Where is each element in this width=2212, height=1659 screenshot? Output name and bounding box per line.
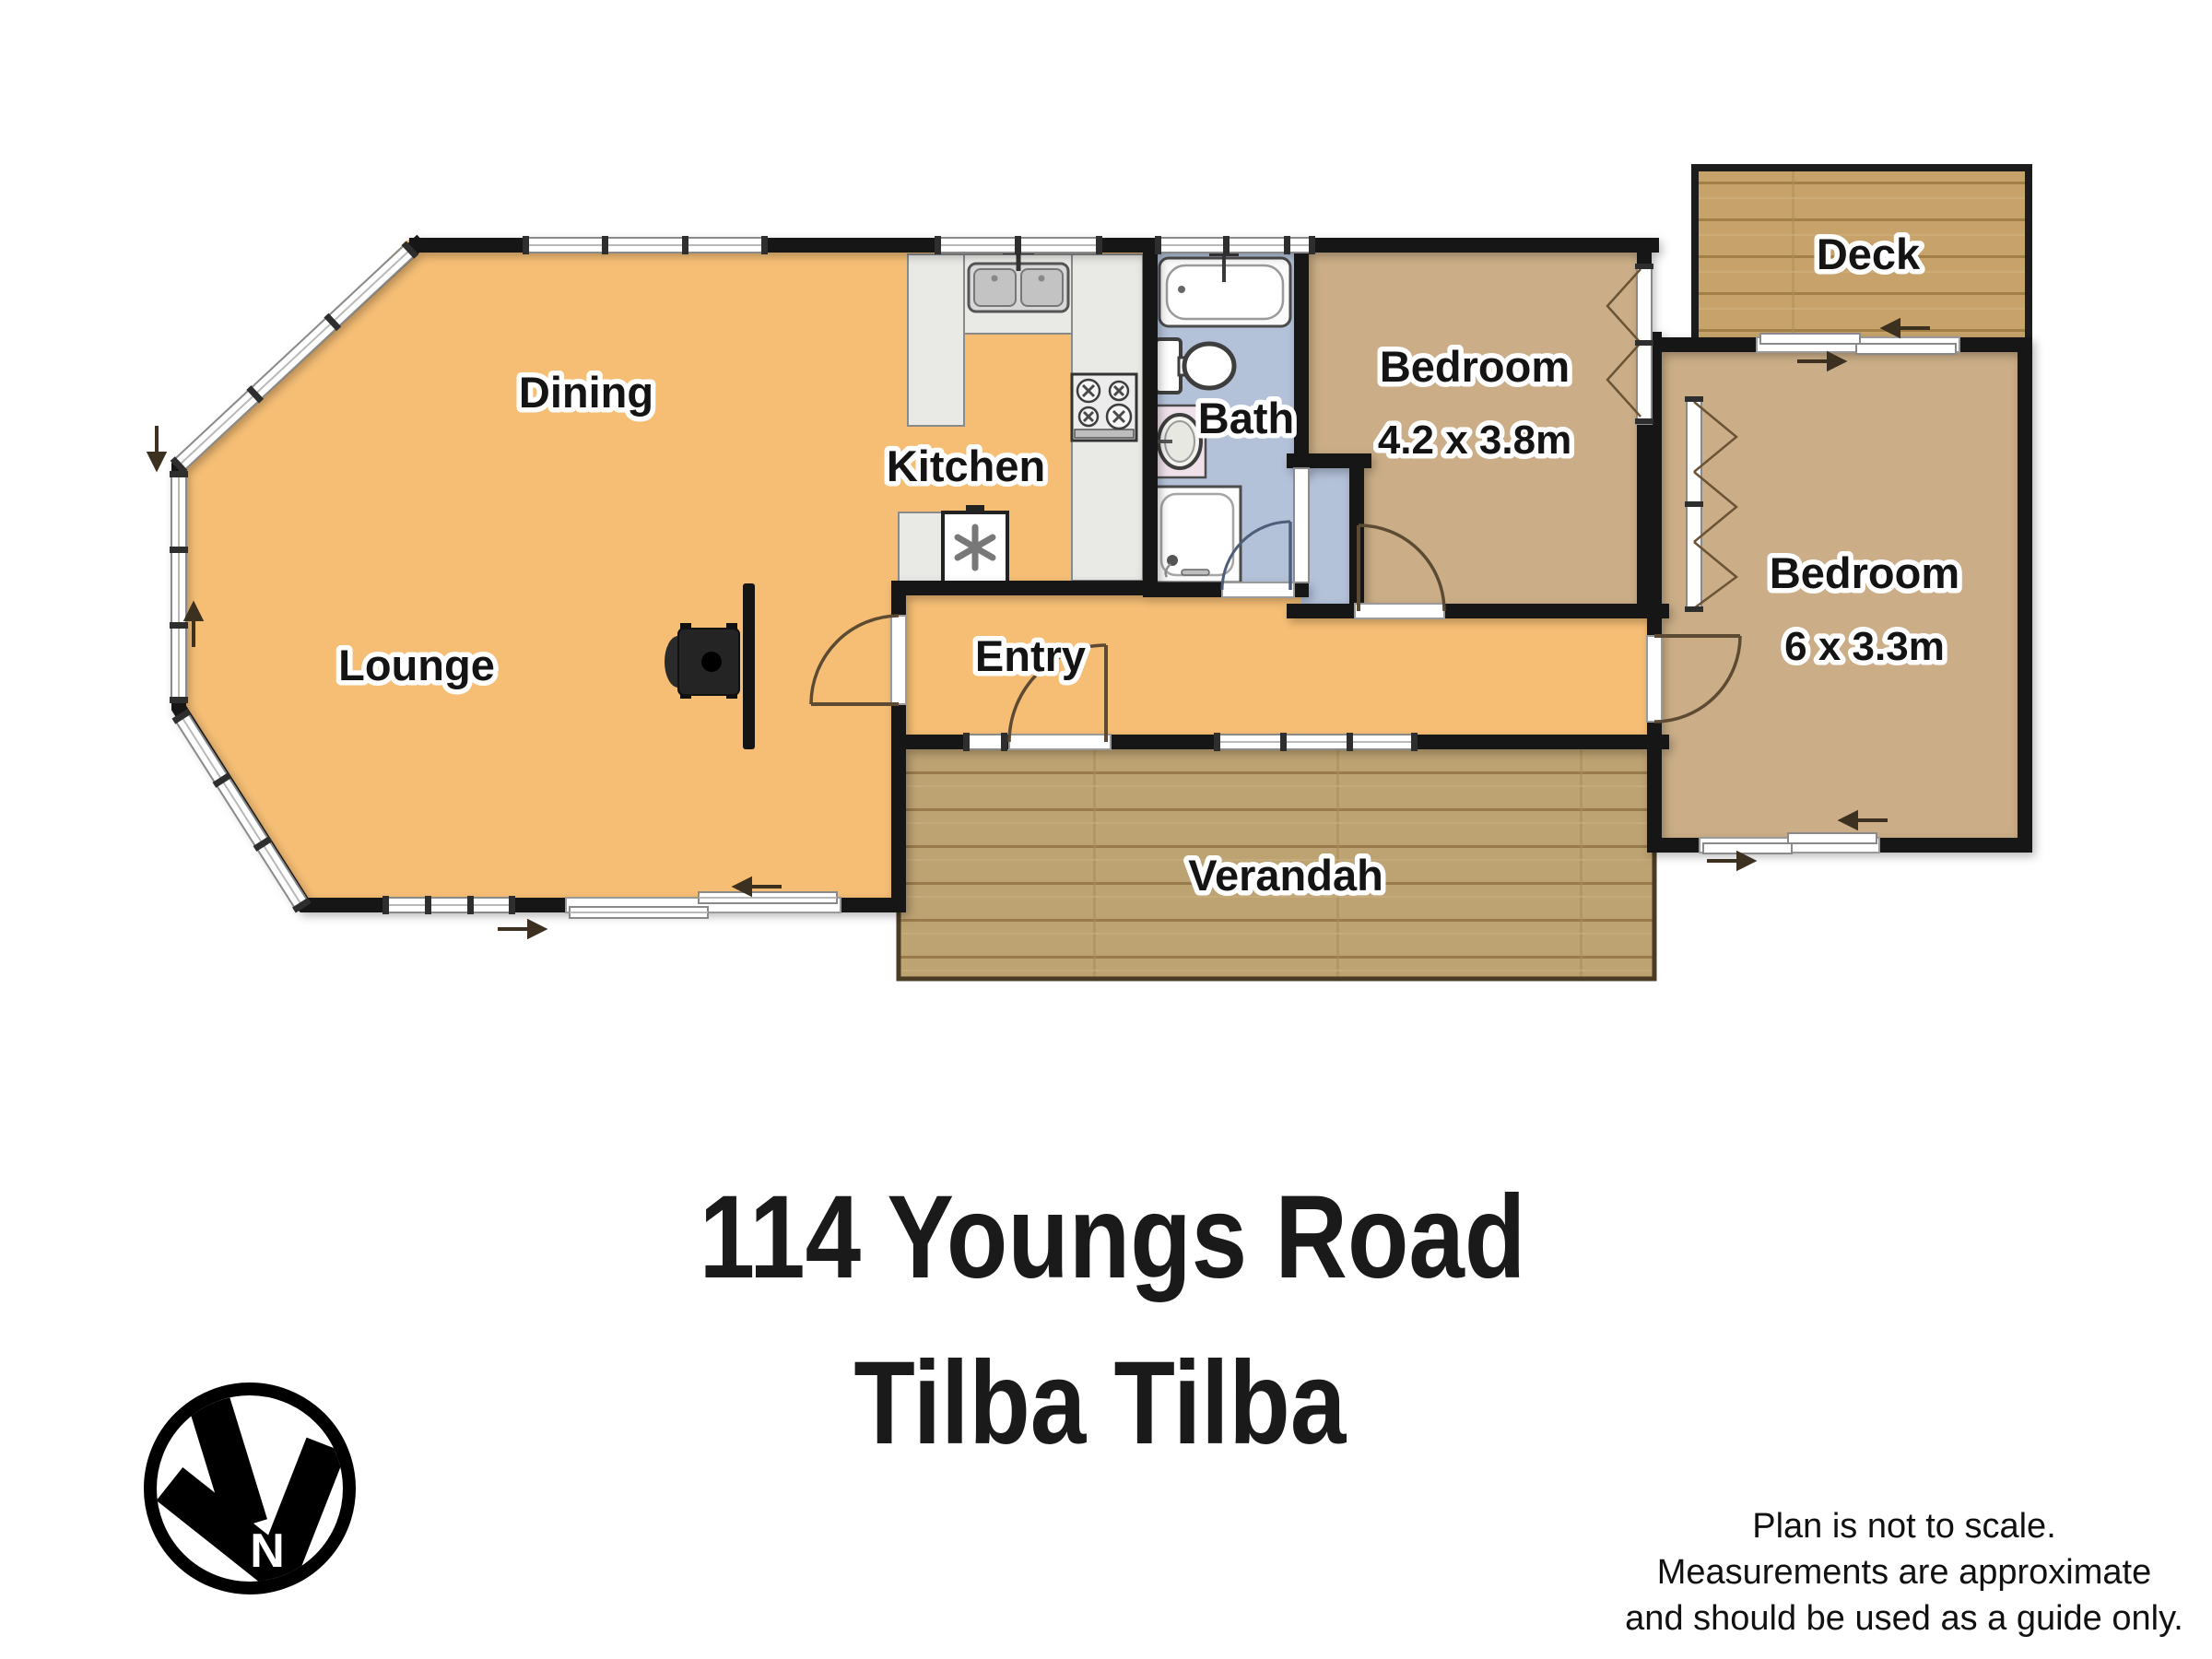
title-address: 114 Youngs Road	[700, 1171, 1526, 1303]
disclaimer-line-2: Measurements are approximate	[1657, 1553, 2151, 1592]
slide-arrow-bay-down	[149, 426, 164, 468]
floor-plan: Dining Lounge Kitchen Bath Entry Veranda…	[0, 0, 2212, 1659]
label-bedroom1: Bedroom	[1380, 342, 1570, 391]
label-entry: Entry	[975, 631, 1086, 680]
disclaimer-line-3: and should be used as a guide only.	[1625, 1599, 2183, 1638]
label-deck: Deck	[1817, 229, 1921, 278]
slide-arrow-lounge-right	[498, 922, 544, 936]
window-dining-top	[523, 236, 768, 254]
label-lounge: Lounge	[338, 641, 495, 689]
nook-panel	[1294, 468, 1309, 582]
label-kitchen: Kitchen	[887, 441, 1045, 490]
disclaimer-note: Plan is not to scale. Measurements are a…	[1625, 1507, 2183, 1638]
feature-wall	[743, 583, 755, 749]
label-bedroom1-dimensions: 4.2 x 3.8m	[1378, 418, 1571, 463]
window-entry-right	[1214, 733, 1418, 751]
window-bath-top	[1155, 236, 1315, 254]
label-verandah: Verandah	[1188, 851, 1383, 900]
title-suburb: Tilba Tilba	[853, 1337, 1347, 1469]
sliding-door-deck	[1757, 334, 1959, 354]
slide-arrow-bedroom2-right	[1707, 853, 1753, 868]
north-compass-icon: N	[150, 1389, 349, 1588]
disclaimer-line-1: Plan is not to scale.	[1752, 1507, 2056, 1546]
label-bath: Bath	[1198, 394, 1294, 442]
plan-title: 114 Youngs Road Tilba Tilba	[700, 1171, 1526, 1469]
label-bedroom2-dimensions: 6 x 3.3m	[1784, 624, 1945, 669]
label-bedroom2: Bedroom	[1770, 548, 1959, 597]
window-entry-small	[963, 733, 1007, 751]
toilet	[1156, 339, 1234, 393]
floor-plan-page: Dining Lounge Kitchen Bath Entry Veranda…	[0, 0, 2212, 1659]
stove-cooktop	[1072, 374, 1136, 441]
label-dining: Dining	[519, 368, 653, 417]
window-bay-left	[170, 471, 188, 703]
shower	[1154, 487, 1241, 582]
compass-north-label: N	[250, 1524, 285, 1578]
window-kitchen-top	[935, 236, 1102, 254]
window-lounge-bottom	[382, 896, 515, 914]
dishwasher	[943, 505, 1007, 582]
